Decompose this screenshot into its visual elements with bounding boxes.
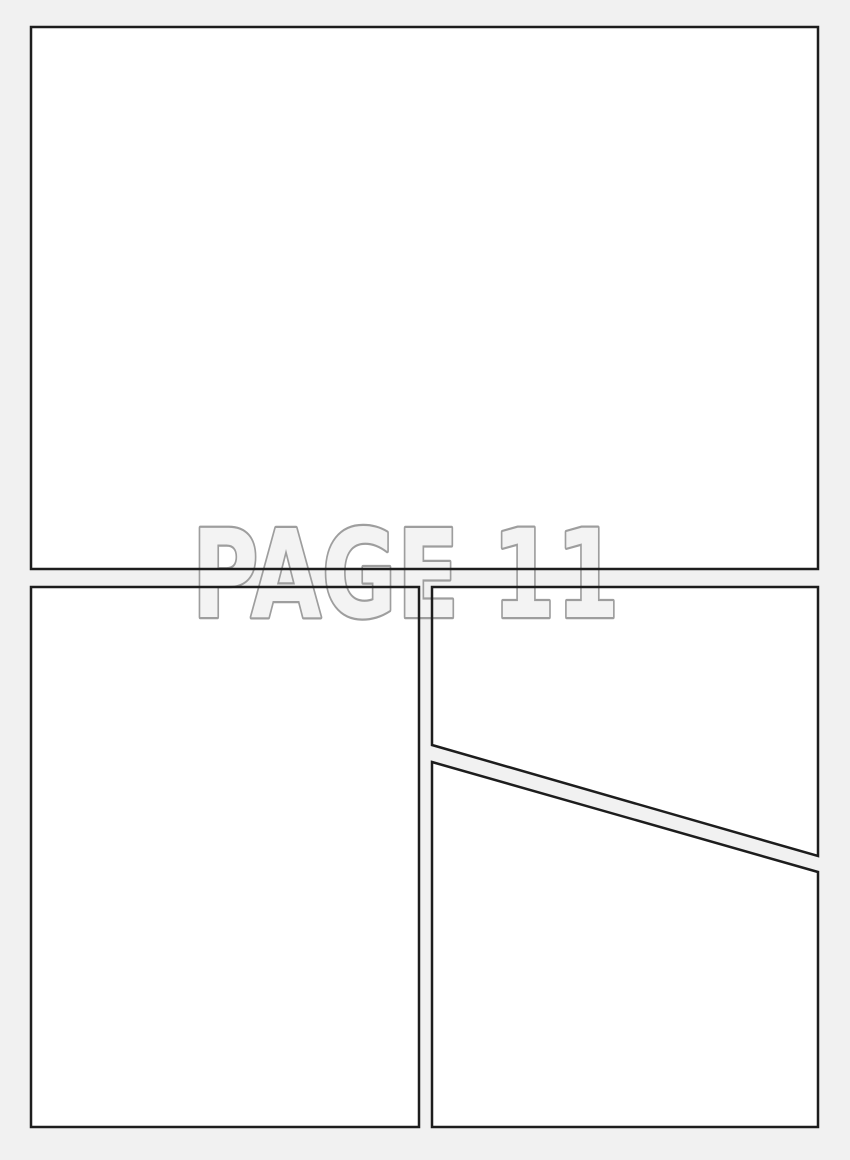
comic-page-template: PAGE 11	[0, 0, 850, 1160]
page-canvas: PAGE 11	[0, 0, 850, 1160]
panel-bottom-left-fill	[31, 587, 419, 1127]
panel-top-fill	[31, 27, 818, 569]
page-number-watermark: PAGE 11	[192, 504, 620, 646]
